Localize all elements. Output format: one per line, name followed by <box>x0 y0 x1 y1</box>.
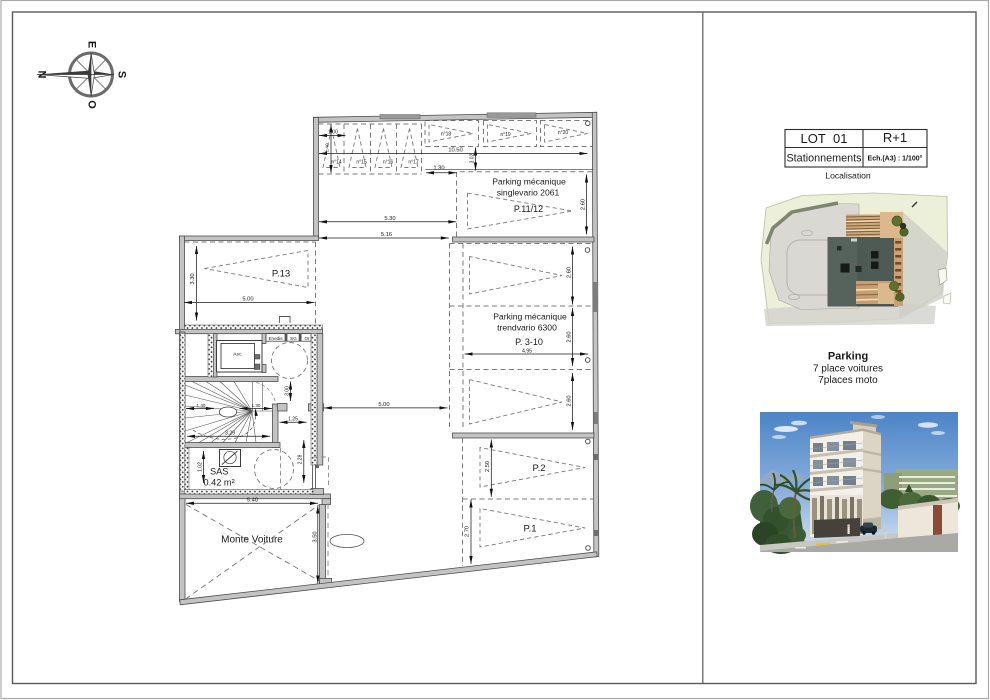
svg-text:1.00: 1.00 <box>328 130 338 136</box>
svg-text:P.1: P.1 <box>523 524 536 535</box>
svg-text:Ech.(A3) : 1/100°: Ech.(A3) : 1/100° <box>868 155 923 163</box>
svg-text:3.02: 3.02 <box>469 153 475 163</box>
svg-text:5.00: 5.00 <box>378 402 389 408</box>
svg-text:S: S <box>116 71 128 78</box>
svg-text:0.42 m²: 0.42 m² <box>204 478 235 488</box>
svg-text:5.30: 5.30 <box>384 216 395 222</box>
svg-text:n°18: n°18 <box>441 131 452 137</box>
svg-text:Asc.: Asc. <box>233 351 243 357</box>
svg-text:7 place voitures: 7 place voitures <box>813 364 883 375</box>
svg-text:1.40: 1.40 <box>325 143 331 153</box>
svg-text:5.16: 5.16 <box>381 232 392 238</box>
svg-text:Monte Voiture: Monte Voiture <box>221 535 283 546</box>
svg-text:P. 3-10: P. 3-10 <box>515 337 543 347</box>
svg-text:n°15: n°15 <box>356 160 367 166</box>
svg-text:2.60: 2.60 <box>580 199 586 210</box>
svg-text:Parking mécanique: Parking mécanique <box>492 177 566 187</box>
svg-text:SAS: SAS <box>210 467 228 477</box>
svg-text:1.30: 1.30 <box>252 403 261 408</box>
svg-text:O: O <box>86 100 98 109</box>
svg-text:singlevario 2061: singlevario 2061 <box>497 188 560 198</box>
svg-text:N: N <box>36 71 48 79</box>
svg-text:Localisation: Localisation <box>825 171 871 181</box>
svg-text:n°19: n°19 <box>500 132 511 138</box>
svg-text:Stationnements: Stationnements <box>786 153 862 165</box>
svg-text:P.2: P.2 <box>532 463 545 474</box>
svg-text:Enedis: Enedis <box>268 336 283 341</box>
svg-text:P.13: P.13 <box>272 269 290 280</box>
svg-text:1.02: 1.02 <box>197 462 203 472</box>
svg-text:7places moto: 7places moto <box>818 375 878 386</box>
svg-text:n°17: n°17 <box>408 160 419 166</box>
svg-text:P.11/12: P.11/12 <box>514 204 543 214</box>
svg-text:2.70: 2.70 <box>465 526 471 537</box>
svg-text:2.60: 2.60 <box>566 267 572 278</box>
svg-text:10.50: 10.50 <box>448 148 463 154</box>
svg-text:2.60: 2.60 <box>566 331 572 342</box>
svg-text:n°16: n°16 <box>383 160 394 166</box>
svg-text:3.50: 3.50 <box>313 531 319 542</box>
svg-text:2.50: 2.50 <box>485 461 491 472</box>
svg-text:1.25: 1.25 <box>288 417 298 423</box>
svg-text:2.60: 2.60 <box>566 395 572 406</box>
svg-text:Parking: Parking <box>828 351 868 363</box>
svg-text:SG: SG <box>290 336 297 341</box>
svg-text:n°20: n°20 <box>558 130 569 136</box>
svg-text:2.28: 2.28 <box>298 454 304 464</box>
svg-text:5.00: 5.00 <box>242 297 253 303</box>
svg-text:3.00: 3.00 <box>284 386 290 396</box>
svg-text:R+1: R+1 <box>883 130 907 145</box>
svg-text:3.30: 3.30 <box>190 273 196 284</box>
svg-text:1.40: 1.40 <box>197 403 206 408</box>
svg-text:1.30: 1.30 <box>433 166 444 172</box>
svg-text:trendvario 6300: trendvario 6300 <box>497 323 557 333</box>
svg-text:5.40: 5.40 <box>247 498 258 504</box>
svg-text:4.95: 4.95 <box>522 348 532 354</box>
svg-text:Parking mécanique: Parking mécanique <box>493 312 567 322</box>
svg-text:Or: Or <box>304 336 310 341</box>
svg-text:n°14: n°14 <box>331 160 342 166</box>
svg-text:LOT 01: LOT 01 <box>801 131 848 146</box>
svg-text:E: E <box>86 41 98 48</box>
svg-text:3.29: 3.29 <box>225 431 235 437</box>
